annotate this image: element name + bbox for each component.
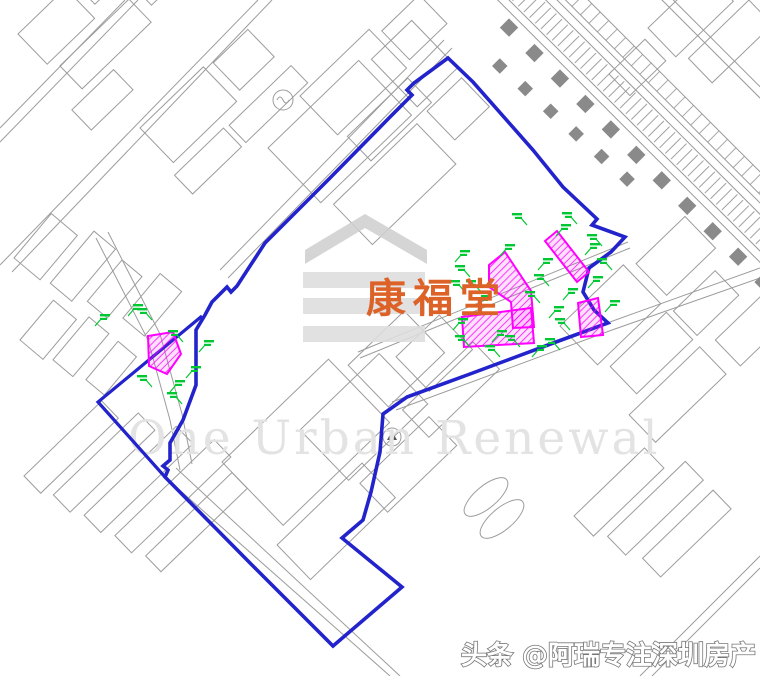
survey-marker [585,243,600,255]
parcel-hatched [578,298,603,337]
survey-marker [485,345,500,357]
place-label: 康福堂 [366,275,507,322]
survey-marker [455,250,470,262]
survey-marker [170,380,185,392]
survey-marker [605,300,620,312]
survey-marker [95,314,110,326]
survey-marker [597,258,612,270]
map-canvas: One Urban Renewal 康福堂 头条 @阿瑞专注深圳房产 [0,0,760,676]
renewal-watermark-text: One Urban Renewal [128,411,661,466]
survey-marker [186,366,201,378]
survey-marker [538,258,553,270]
survey-marker [556,224,571,236]
survey-marker [549,306,564,318]
planning-map: One Urban Renewal 康福堂 头条 @阿瑞专注深圳房产 [0,0,760,676]
survey-marker [199,340,214,352]
parcel-hatched [148,332,181,374]
survey-marker [562,212,577,224]
survey-marker [167,392,182,404]
arterial-road [479,0,760,310]
survey-marker [137,375,152,387]
survey-marker [563,288,578,300]
parcel-hatched [545,231,589,282]
survey-marker [512,213,527,225]
credit-watermark: 头条 @阿瑞专注深圳房产 [461,640,756,671]
